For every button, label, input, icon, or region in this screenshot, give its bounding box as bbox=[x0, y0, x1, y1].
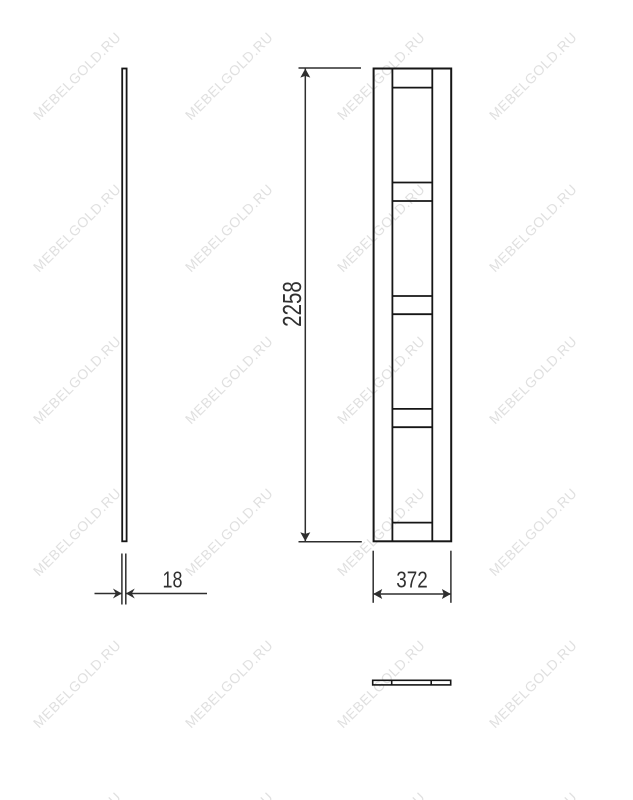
svg-text:2258: 2258 bbox=[278, 281, 307, 327]
svg-text:372: 372 bbox=[396, 568, 427, 593]
svg-text:18: 18 bbox=[163, 567, 183, 593]
